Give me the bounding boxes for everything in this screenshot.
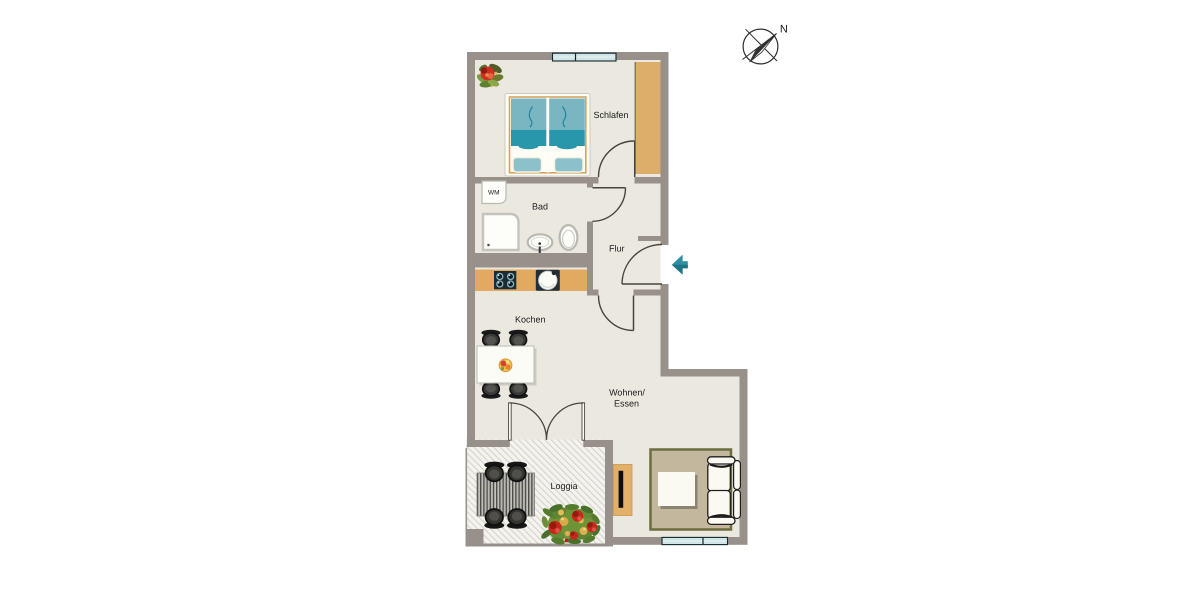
svg-text:N: N <box>780 24 788 36</box>
svg-text:WM: WM <box>488 190 500 197</box>
svg-text:Kochen: Kochen <box>515 315 546 325</box>
svg-text:Flur: Flur <box>609 244 625 254</box>
svg-text:Wohnen/: Wohnen/ <box>609 387 645 397</box>
svg-text:Bad: Bad <box>532 202 548 212</box>
svg-text:Loggia: Loggia <box>550 481 577 491</box>
svg-text:Essen: Essen <box>614 398 639 408</box>
svg-text:Schlafen: Schlafen <box>593 110 628 120</box>
